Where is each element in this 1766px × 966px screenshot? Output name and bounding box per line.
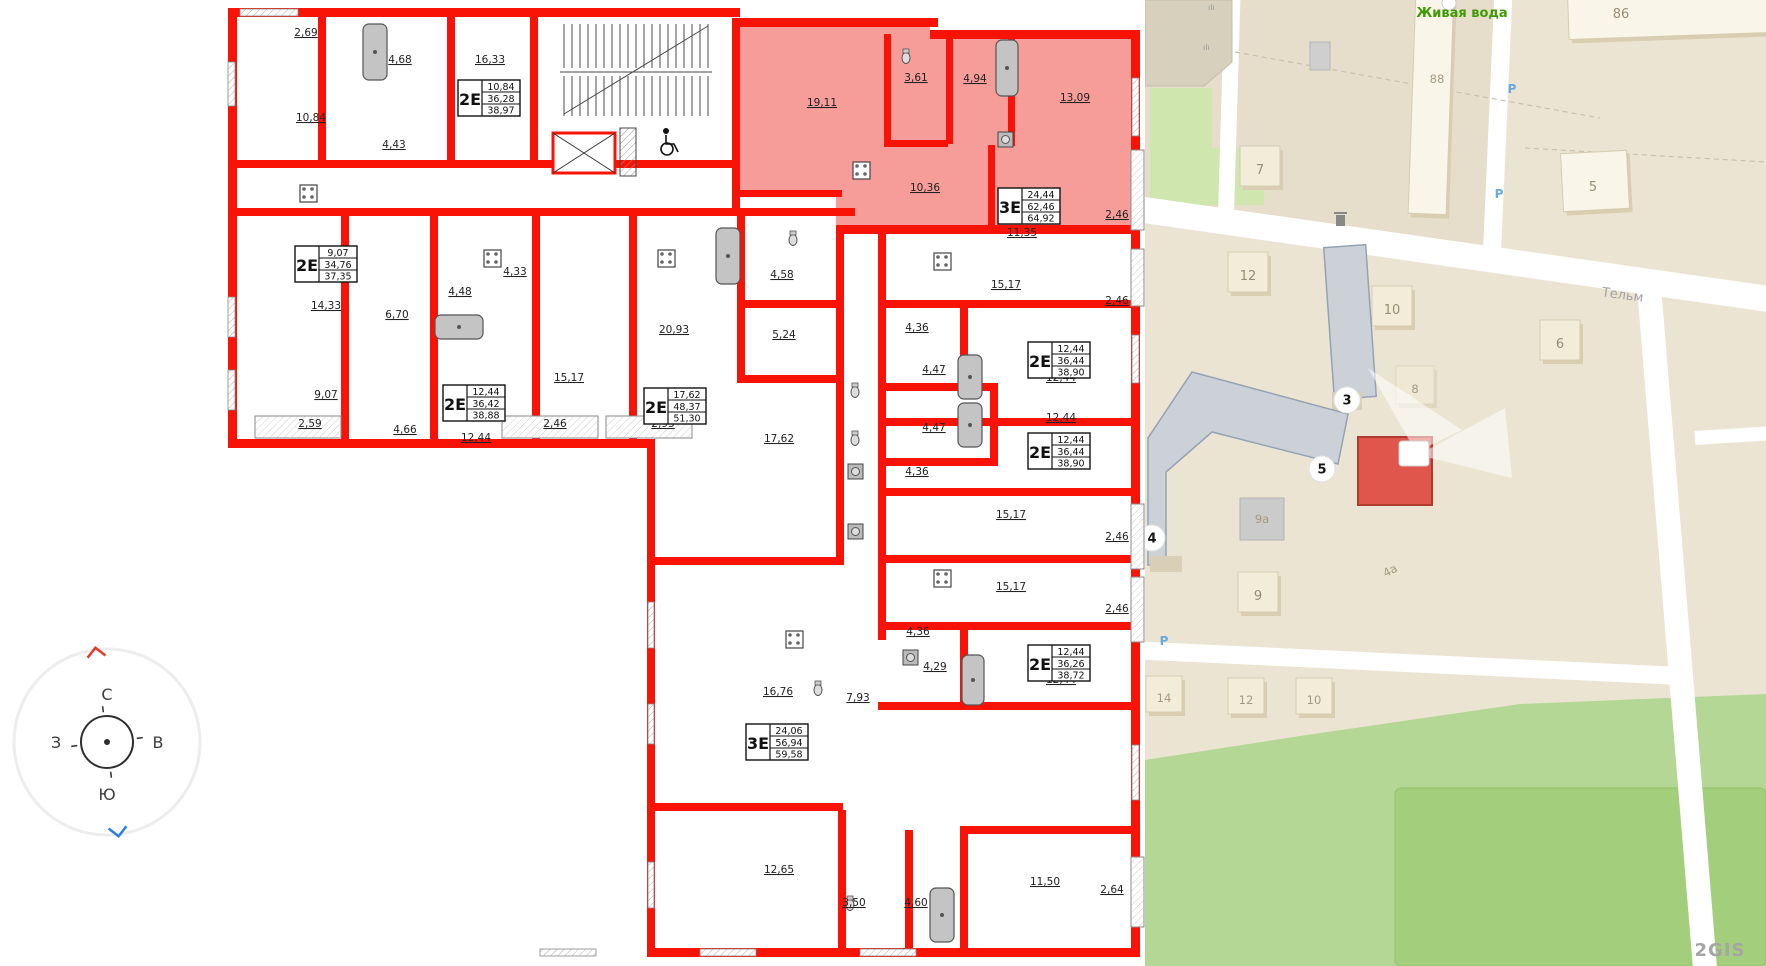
room-area-label: 4,66 [393,424,417,436]
room-area-label: 14,33 [311,300,341,312]
area-total: 37,35 [324,272,351,283]
room-area-label: 2,59 [298,418,321,430]
shaft [620,128,636,176]
toilet [851,387,859,398]
apartment-info-box[interactable]: 2Е12,4436,2638,72 [1028,645,1090,682]
room-area-label: 4,33 [503,266,526,278]
room-area-label: 4,29 [923,661,946,673]
area-living: 36,28 [487,94,514,105]
room-area-label: 2,46 [1105,209,1129,221]
area-living: 34,76 [324,260,351,271]
room-area-label: 4,47 [922,422,945,434]
area-total: 59,58 [775,750,802,761]
room-area-label: 15,17 [996,509,1026,521]
room-area-label: 12,44 [1046,412,1076,424]
stove [658,250,675,267]
road [1492,0,1504,252]
area-living: 36,44 [1057,356,1084,367]
area-total: 38,72 [1057,671,1084,682]
apartment-type: 2Е [296,256,318,275]
parking-icon[interactable]: Р [1508,82,1517,96]
room-area-label: 19,11 [807,97,837,109]
building-4-entrance [1150,556,1182,572]
toilet [902,53,910,64]
building-grey-small[interactable] [1310,42,1330,70]
room-area-label: 2,46 [1105,531,1129,543]
building-label: 10 [1384,303,1401,318]
building-label: 12 [1240,269,1257,284]
room-area-label: 11,35 [1007,227,1037,239]
area-total: 51,30 [673,414,700,425]
room-area-label: 17,62 [764,433,794,445]
building[interactable] [1145,0,1232,86]
building-label: 7 [1256,163,1264,178]
badge-number: 4 [1147,532,1156,547]
room-area-label: 4,36 [905,466,929,478]
room-area-label: 2,46 [543,418,567,430]
apartment-type: 2Е [459,90,481,109]
stove [484,250,501,267]
room-area-label: 5,24 [772,329,796,341]
elevator [553,133,615,173]
apartment-info-box[interactable]: 2Е12,4436,4438,90 [1028,342,1090,379]
room-area-label: 4,94 [963,73,987,85]
map-pane[interactable]: 86887512106891412109а345РРРЖивая водаТел… [1130,0,1766,966]
apartment-type: 2Е [444,395,466,414]
building-label: 6 [1556,337,1564,352]
building-label: 88 [1430,72,1445,86]
area-room: 9,07 [327,248,348,259]
area-living: 56,94 [775,738,802,749]
room-area-label: 2,46 [1105,295,1129,307]
toilet [851,435,859,446]
apartment-info-box[interactable]: 2Е12,4436,4438,90 [1028,433,1090,470]
room-area-label: 9,07 [314,389,337,401]
trash-icon [1336,215,1345,226]
room-area-label: 15,17 [554,372,584,384]
antenna-icon: ılı [1203,43,1210,52]
area-living: 48,37 [673,402,700,413]
room-area-label: 6,70 [385,309,408,321]
apartment-info-box[interactable]: 2Е10,8436,2838,97 [458,80,520,117]
building-label: 12 [1239,693,1254,707]
room-area-label: 3,50 [842,897,865,909]
stove [786,631,803,648]
room-area-label: 10,36 [910,182,940,194]
room-area-label: 16,76 [763,686,793,698]
antenna-icon: ılı [1208,3,1215,12]
poi-label[interactable]: Живая вода [1416,6,1507,21]
room-area-label: 3,61 [904,72,927,84]
area-room: 17,62 [673,390,700,401]
building-label: 5 [1589,180,1597,195]
building-86[interactable] [1567,0,1766,43]
building-label: 9а [1255,512,1269,526]
room-area-label: 2,64 [1100,884,1124,896]
building-label: 9 [1254,589,1262,604]
area-room: 12,44 [472,387,499,398]
parking-icon[interactable]: Р [1495,187,1504,201]
room-area-label: 13,09 [1060,92,1090,104]
room-area-label: 16,33 [475,54,505,66]
apartment-type: 2Е [645,398,667,417]
apartment-floorplan-and-map-view: 86887512106891412109а345РРРЖивая водаТел… [0,0,1766,966]
apartment-info-box[interactable]: 3Е24,4462,4664,92 [998,188,1060,225]
room-area-label: 4,60 [904,897,927,909]
room-area-label: 2,46 [1105,603,1129,615]
toilet [789,235,797,246]
area-room: 12,44 [1057,344,1084,355]
room-area-label: 7,93 [846,692,869,704]
room-area-label: 4,36 [906,626,930,638]
stove [853,162,870,179]
area-total: 38,97 [487,106,514,117]
apartment-info-box[interactable]: 2Е17,6248,3751,30 [644,388,706,425]
apartment-info-box[interactable]: 2Е12,4436,4238,88 [443,385,505,422]
stove [934,253,951,270]
apartment-type: 2Е [1029,655,1051,674]
building-label: 10 [1307,693,1322,707]
room-area-label: 11,50 [1030,876,1060,888]
compass-west: З [51,733,61,752]
stove [934,570,951,587]
area-room: 24,44 [1027,190,1054,201]
area-living: 36,42 [472,399,499,410]
apartment-type: 2Е [1029,352,1051,371]
room-area-label: 2,69 [294,27,317,39]
area-room: 12,44 [1057,435,1084,446]
area-room: 12,44 [1057,647,1084,658]
apartment-info-box[interactable]: 2Е9,0734,7637,35 [295,246,357,283]
room-area-label: 4,36 [905,322,929,334]
building-badge-5[interactable]: 5 [1309,456,1335,482]
stove [300,185,317,202]
room-area-label: 12,65 [764,864,794,876]
room-area-label: 12,44 [461,432,491,444]
apartment-info-box[interactable]: 3Е24,0656,9459,58 [746,724,808,761]
room-area-label: 4,68 [388,54,411,66]
compass-north: С [101,685,112,704]
area-room: 24,06 [775,726,802,737]
area-room: 10,84 [487,82,514,93]
area-total: 38,88 [472,411,499,422]
toilet [814,685,822,696]
area-total: 38,90 [1057,459,1084,470]
area-living: 62,46 [1027,202,1054,213]
building-label: 86 [1613,7,1630,22]
compass-east: В [153,733,164,752]
building-label: 14 [1157,691,1172,705]
area-total: 38,90 [1057,368,1084,379]
compass-south: Ю [98,785,115,804]
building-88[interactable] [1408,0,1457,219]
area-total: 64,92 [1027,214,1054,225]
area-living: 36,44 [1057,447,1084,458]
room-area-label: 20,93 [659,324,689,336]
apartment-type: 2Е [1029,443,1051,462]
parking-icon[interactable]: Р [1160,634,1169,648]
area-living: 36,26 [1057,659,1084,670]
apartment-type: 3Е [747,734,769,753]
room-area-label: 4,58 [770,269,793,281]
road [1695,432,1766,438]
building-badge-3[interactable]: 3 [1334,387,1360,413]
badge-number: 3 [1342,394,1351,409]
room-area-label: 10,84 [296,112,326,124]
2gis-watermark: 2GIS [1695,940,1746,961]
apartment-type: 3Е [999,198,1021,217]
building-label: 8 [1411,382,1418,396]
room-area-label: 4,47 [922,364,945,376]
room-area-label: 4,43 [382,139,405,151]
room-area-label: 15,17 [991,279,1021,291]
room-area-label: 15,17 [996,581,1026,593]
badge-number: 5 [1317,463,1326,478]
selected-entrance-marker [1399,441,1429,466]
room-area-label: 4,48 [448,286,471,298]
